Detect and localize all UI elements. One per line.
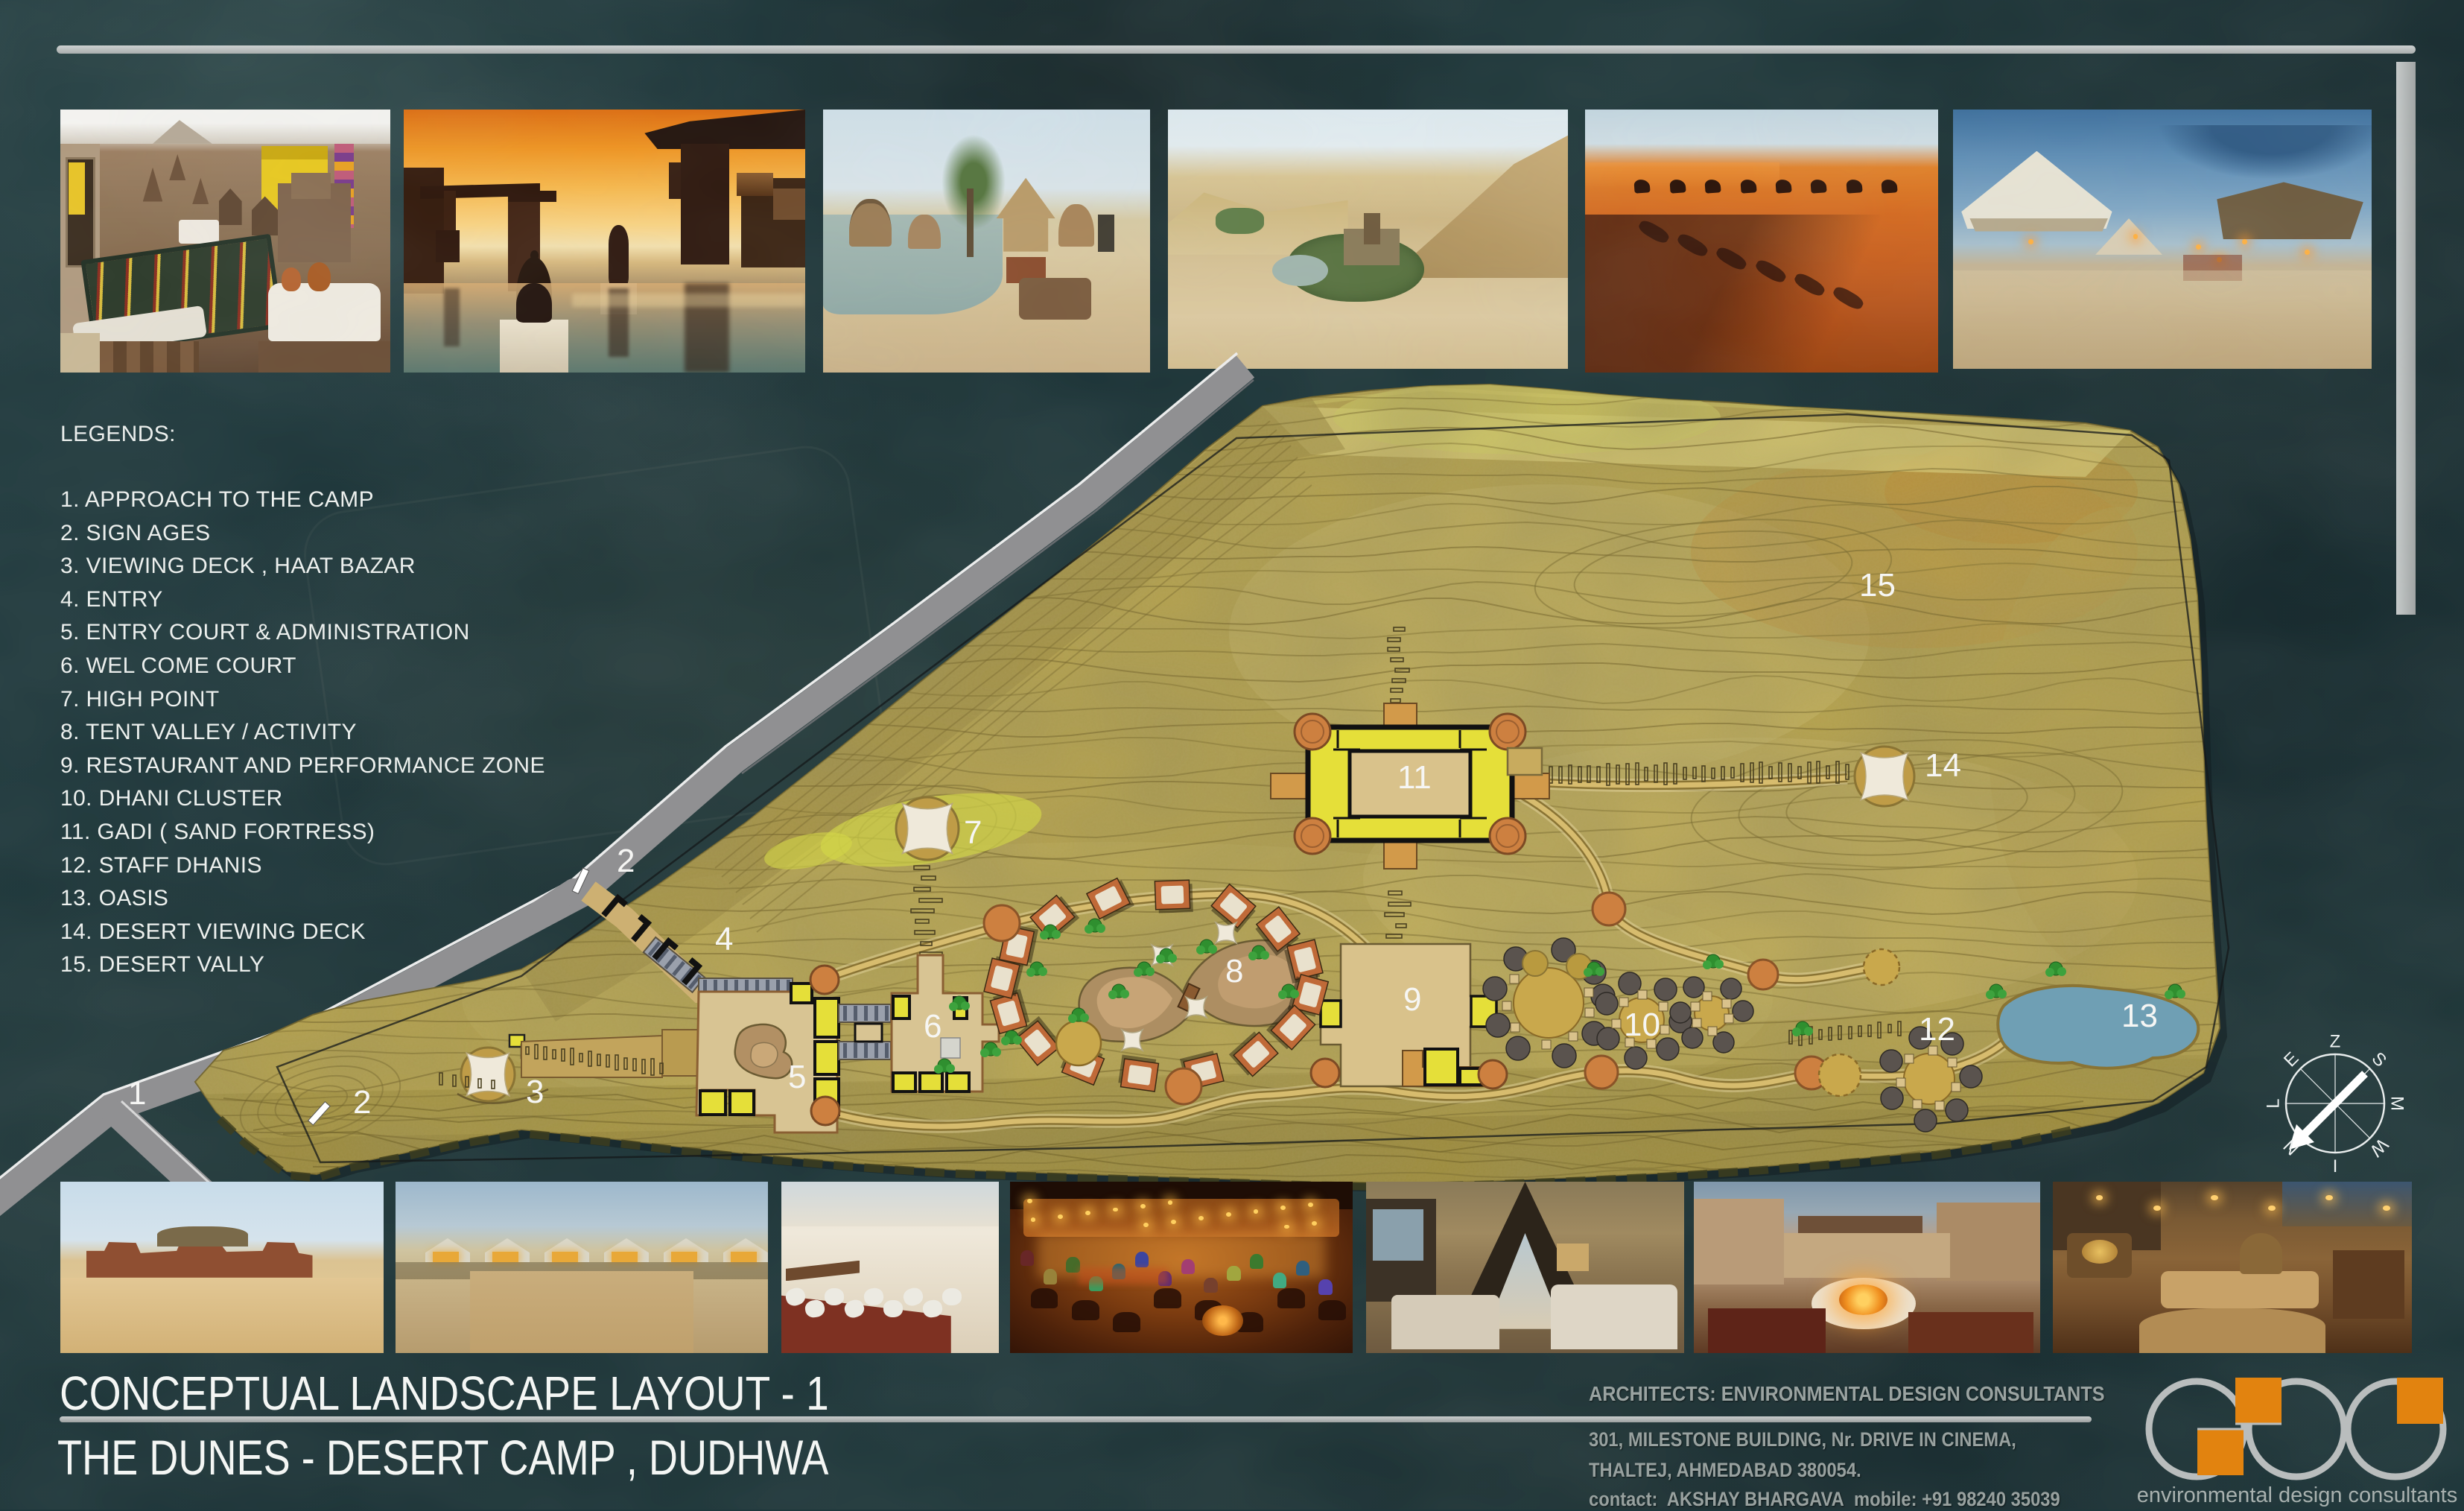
svg-text:2: 2 — [617, 843, 635, 879]
svg-text:13: 13 — [2121, 998, 2158, 1034]
svg-text:12: 12 — [1919, 1011, 1955, 1048]
svg-text:15: 15 — [1859, 567, 1896, 604]
svg-text:8: 8 — [1225, 953, 1243, 989]
svg-text:11: 11 — [1397, 759, 1432, 796]
svg-text:environmental design consultan: environmental design consultants — [2137, 1483, 2457, 1507]
svg-text:L: L — [2263, 1098, 2283, 1108]
svg-text:5: 5 — [788, 1059, 806, 1095]
svg-text:10: 10 — [1624, 1007, 1660, 1043]
svg-text:4: 4 — [715, 921, 733, 957]
svg-text:6: 6 — [924, 1008, 942, 1045]
svg-text:M: M — [2387, 1096, 2407, 1111]
svg-text:1: 1 — [128, 1075, 146, 1112]
svg-text:3: 3 — [526, 1074, 544, 1110]
svg-text:Z: Z — [2330, 1031, 2341, 1051]
svg-text:2: 2 — [353, 1084, 371, 1121]
svg-text:I: I — [2333, 1156, 2338, 1176]
svg-text:9: 9 — [1403, 981, 1421, 1018]
svg-text:14: 14 — [1925, 747, 1961, 784]
svg-text:7: 7 — [964, 814, 982, 851]
